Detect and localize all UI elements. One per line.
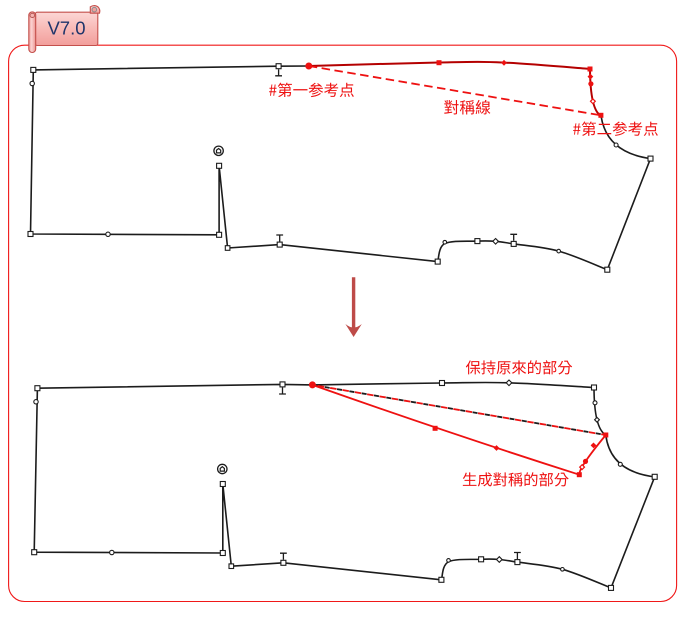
svg-text:V7.0: V7.0	[47, 18, 85, 39]
